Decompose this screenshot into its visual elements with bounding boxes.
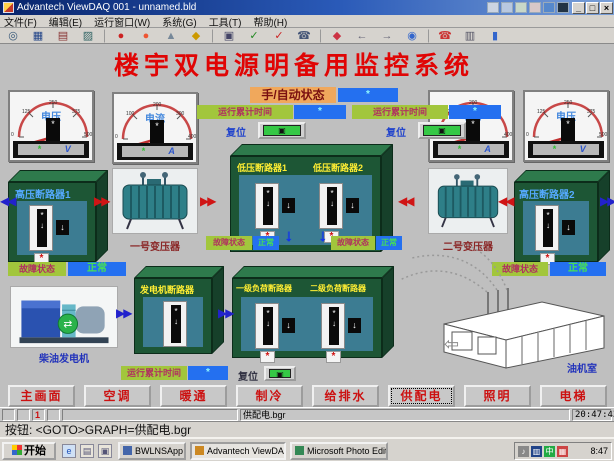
- titlebar-icon[interactable]: [501, 2, 513, 13]
- incoming-arrow-right: ▶▶: [600, 194, 614, 208]
- gauge-value: *: [458, 144, 462, 155]
- gauge-unit: V: [580, 144, 586, 155]
- gauge-tick: 300: [176, 111, 184, 117]
- fault-value-center-1: 正常: [253, 236, 279, 250]
- maximize-button[interactable]: □: [586, 2, 599, 14]
- volume-icon[interactable]: ♪: [518, 446, 529, 457]
- gauge-unit: A: [484, 144, 491, 155]
- app-icon: [3, 2, 14, 13]
- generator-breaker-box: 发电机断路器 * ↓: [134, 266, 224, 354]
- gauge-readout: * A: [433, 141, 509, 158]
- runtime-label-1: 运行累计时间: [197, 105, 293, 119]
- transformer-1-image: [112, 168, 198, 234]
- load-breaker-2[interactable]: * ↓↓*: [321, 303, 345, 349]
- input-method-icon[interactable]: 中: [544, 446, 555, 457]
- phone-icon[interactable]: ☎: [436, 29, 454, 43]
- page-title: 楼宇双电源明备用监控系统: [88, 46, 500, 82]
- network-icon[interactable]: ▥: [531, 446, 542, 457]
- flow-arrow-t1-lv: ▶▶: [200, 194, 214, 208]
- status-page-number: 1: [32, 409, 45, 421]
- menu-item-2[interactable]: 运行窗口(W): [94, 14, 150, 29]
- snapshot-icon[interactable]: ▣: [220, 29, 238, 43]
- gauge-display: *: [46, 118, 60, 142]
- titlebar-icon[interactable]: [515, 2, 527, 13]
- task-button-3[interactable]: Microsoft Photo Editor: [290, 442, 388, 460]
- trend-icon[interactable]: ▨: [79, 29, 105, 43]
- toolbar: ◎▦▤▨●●▲◆▣✓✓☎◆←→◉☎▥▮: [0, 28, 614, 44]
- load-breaker-1-title: 一级负荷断路器: [236, 283, 292, 294]
- titlebar-icon[interactable]: [557, 2, 569, 13]
- mode-label: 手/自动状态: [250, 87, 336, 103]
- status-cell: [17, 409, 30, 421]
- load-breaker-box: 一级负荷断路器 二级负荷断路器 * ↓↓* * ↓↓*: [232, 266, 394, 358]
- taskbar: 开始 e ▤ ▣ BWLNSApp Advantech ViewDAQ 001 …: [0, 437, 614, 461]
- film-icon[interactable]: ▥: [461, 29, 479, 43]
- person-icon[interactable]: ▮: [486, 29, 504, 43]
- channels-icon[interactable]: ▣: [98, 444, 112, 458]
- minimize-button[interactable]: _: [572, 2, 585, 14]
- dial-icon[interactable]: ☎: [295, 29, 321, 43]
- print-icon[interactable]: ▤: [54, 29, 72, 43]
- window-title: Advantech ViewDAQ 001 - unnamed.bld: [17, 0, 487, 15]
- hv-breaker-1[interactable]: * ↓↓*: [29, 205, 53, 251]
- breaker-rod: * ↓: [37, 209, 47, 247]
- alarm-ack-icon[interactable]: ●: [137, 29, 155, 43]
- lv-breaker-2-title: 低压断路器2: [313, 161, 363, 174]
- hv-breaker-2-title: 高压断路器2: [519, 186, 575, 201]
- nav-button-4[interactable]: 给排水: [312, 385, 379, 407]
- plant-room-drawing: ⇦: [392, 240, 610, 370]
- fault-label-center-2: 故障状态: [331, 236, 375, 250]
- key-icon[interactable]: ◆: [187, 29, 213, 43]
- close-button[interactable]: ×: [600, 2, 613, 14]
- gauge-readout: * V: [528, 141, 604, 158]
- status-cell: [47, 409, 60, 421]
- transformer-2-image: [428, 168, 508, 234]
- reset-label-1: 复位: [226, 124, 246, 139]
- incoming-arrow-left: ◀◀: [0, 194, 14, 208]
- lv-breaker-1-title: 低压断路器1: [237, 161, 287, 174]
- back-icon[interactable]: ←: [353, 29, 371, 43]
- voltage-gauge-1: 电压 * * V 0125250375500: [8, 90, 94, 162]
- nav-button-7[interactable]: 电梯: [540, 385, 607, 407]
- gauge-tick: 250: [564, 100, 572, 106]
- status-cell: [62, 409, 238, 421]
- fault-label-left: 故障状态: [8, 262, 66, 276]
- runtime-value-1: *: [294, 105, 346, 119]
- breaker-alarm-indicator: *: [326, 351, 341, 363]
- gauge-display: *: [150, 120, 164, 144]
- menu-item-4[interactable]: 工具(T): [209, 14, 242, 29]
- tray-clock: 8:47: [590, 446, 608, 456]
- gauge-tick: 375: [72, 109, 80, 115]
- nav-button-1[interactable]: 空调: [84, 385, 151, 407]
- gen-runtime-value: *: [188, 366, 228, 380]
- nav-bar: 主画面空调暖通制冷给排水供配电照明电梯: [8, 385, 614, 407]
- hmi-canvas: 楼宇双电源明备用监控系统 电压 * * V 0125250375500: [0, 44, 614, 407]
- nav-button-2[interactable]: 暖通: [160, 385, 227, 407]
- gauge-tick: 0: [526, 132, 529, 138]
- gauge-value: *: [38, 144, 42, 155]
- breaker-trip-indicator: ↓: [282, 318, 295, 333]
- fault-label-center-1: 故障状态: [206, 236, 252, 250]
- load-breaker-2-title: 二级负荷断路器: [310, 283, 366, 294]
- mode-value: *: [338, 88, 398, 102]
- gauge-tick: 0: [11, 132, 14, 138]
- generator-breaker-title: 发电机断路器: [140, 283, 194, 296]
- gauge-tick: 500: [84, 132, 92, 138]
- gauge-tick: 0: [115, 134, 118, 140]
- breaker-trip-indicator: ↓: [282, 198, 295, 213]
- reset-button-1[interactable]: ▣: [258, 122, 306, 139]
- menu-item-5[interactable]: 帮助(H): [253, 14, 287, 29]
- svg-text:⇄: ⇄: [63, 319, 72, 331]
- monitor-icon[interactable]: ▦: [557, 446, 568, 457]
- gauge-display: *: [466, 118, 480, 142]
- reset-label-2: 复位: [386, 124, 406, 139]
- ie-icon[interactable]: e: [62, 444, 76, 458]
- runtime-value-2: *: [449, 105, 501, 119]
- gauge-display: *: [561, 118, 575, 142]
- reset-button-2[interactable]: ▣: [418, 122, 466, 139]
- nav-button-6[interactable]: 照明: [464, 385, 531, 407]
- gauge-value: *: [553, 144, 557, 155]
- current-gauge-1: 电流 * * A 0100200300400: [112, 92, 198, 164]
- breaker-trip-indicator: ↓: [346, 198, 359, 213]
- tag-icon[interactable]: ▲: [162, 29, 180, 43]
- lv-breaker-2[interactable]: * ↓↓*: [319, 183, 343, 229]
- title-bar: Advantech ViewDAQ 001 - unnamed.bld _ □ …: [0, 0, 614, 15]
- desktop-icon[interactable]: ▤: [80, 444, 94, 458]
- breaker-rod: * ↓: [263, 187, 273, 225]
- flow-arrow-lv-t2: ◀◀: [398, 194, 412, 208]
- titlebar-icon[interactable]: [487, 2, 499, 13]
- status-cell: [2, 409, 15, 421]
- menu-item-1[interactable]: 编辑(E): [49, 14, 82, 29]
- nav-button-5[interactable]: 供配电: [388, 385, 455, 407]
- lv-breaker-1[interactable]: * ↓↓*: [255, 183, 279, 229]
- cancel-icon[interactable]: ✓: [270, 29, 288, 43]
- gauge-readout: * A: [117, 143, 193, 160]
- load-arrow-down-1: ↓: [284, 226, 293, 246]
- plant-room-caption: 油机室: [556, 360, 608, 375]
- scada-window: Advantech ViewDAQ 001 - unnamed.bld _ □ …: [0, 0, 614, 461]
- windows-logo-icon: [12, 445, 22, 455]
- flow-arrow-t2-hv2: ◀◀: [498, 194, 512, 208]
- gauge-unit: V: [65, 144, 71, 155]
- world-icon[interactable]: ◉: [403, 29, 429, 43]
- confirm-icon[interactable]: ✓: [245, 29, 263, 43]
- status-filename: 供配电.bgr: [240, 409, 570, 421]
- transformer-1-caption: 一号变压器: [114, 238, 196, 253]
- flow-arrow-hv1-t1: ▶▶: [94, 194, 108, 208]
- quick-launch: e ▤ ▣: [62, 444, 112, 458]
- gauge-tick: 250: [49, 100, 57, 106]
- breaker-alarm-indicator: *: [260, 351, 275, 363]
- nav-button-3[interactable]: 制冷: [236, 385, 303, 407]
- status-clock: 20:47:43: [572, 409, 612, 421]
- breaker-trip-indicator: ↓: [562, 220, 575, 235]
- point-icon[interactable]: ◆: [328, 29, 346, 43]
- breaker-rod: * ↓: [263, 307, 273, 345]
- gauge-tick: 500: [599, 132, 607, 138]
- breaker-rod: * ↓: [327, 187, 337, 225]
- gauge-tick: 200: [153, 102, 161, 108]
- forward-icon[interactable]: →: [378, 29, 396, 43]
- task-button-1[interactable]: BWLNSApp: [118, 442, 186, 460]
- gen-reset-button[interactable]: ▣: [264, 366, 296, 381]
- start-button[interactable]: 开始: [2, 442, 56, 460]
- titlebar-icon[interactable]: [529, 2, 541, 13]
- menu-item-3[interactable]: 系统(G): [162, 14, 196, 29]
- load-breaker-1[interactable]: * ↓↓*: [255, 303, 279, 349]
- titlebar-tool-icons[interactable]: [487, 2, 569, 13]
- generator-breaker[interactable]: * ↓: [163, 301, 187, 347]
- alarm-icon[interactable]: ●: [112, 29, 130, 43]
- zoom-icon[interactable]: ◎: [4, 29, 22, 43]
- voltage-gauge-2: 电压 * * V 0125250375500: [523, 90, 609, 162]
- load-arrow-down-2: ↓: [318, 226, 327, 246]
- svg-text:⇦: ⇦: [444, 334, 459, 354]
- nav-button-0[interactable]: 主画面: [8, 385, 75, 407]
- runtime-label-2: 运行累计时间: [352, 105, 448, 119]
- gauge-tick: 100: [126, 111, 134, 117]
- gauge-tick: 375: [587, 109, 595, 115]
- breaker-rod: * ↓: [329, 307, 339, 345]
- generator-caption: 柴油发电机: [22, 350, 106, 365]
- task-button-2[interactable]: Advantech ViewDAQ 001: [190, 442, 286, 460]
- flow-arrow-breaker-load: ▶▶: [218, 306, 232, 320]
- display-icon[interactable]: ▦: [29, 29, 47, 43]
- breaker-trip-indicator: ↓: [56, 220, 69, 235]
- hv-breaker-1-title: 高压断路器1: [15, 186, 71, 201]
- generator-image: ⇄: [10, 286, 118, 348]
- breaker-rod: * ↓: [171, 305, 181, 343]
- flow-arrow-gen-breaker: ▶▶: [116, 306, 130, 320]
- breaker-trip-indicator: ↓: [348, 318, 361, 333]
- command-bar: 按钮: <GOTO>GRAPH=供配电.bgr: [0, 421, 614, 437]
- gauge-tick: 400: [188, 134, 196, 140]
- system-tray: ♪ ▥ 中 ▦ 8:47: [514, 442, 612, 460]
- gauge-tick: 125: [22, 109, 30, 115]
- fault-value-left: 正常: [68, 262, 126, 276]
- hv-breaker-box-1: 高压断路器1 * ↓↓*: [8, 170, 108, 262]
- gauge-readout: * V: [13, 141, 89, 158]
- gen-runtime-label: 运行累计时间: [121, 366, 187, 380]
- gauge-tick: 400: [504, 132, 512, 138]
- status-bar: 1 供配电.bgr 20:47:43: [0, 407, 614, 421]
- menu-item-0[interactable]: 文件(F): [4, 14, 37, 29]
- gauge-tick: 125: [537, 109, 545, 115]
- gauge-unit: A: [168, 146, 175, 157]
- menu-bar: 文件(F)编辑(E)运行窗口(W)系统(G)工具(T)帮助(H): [0, 15, 614, 28]
- gauge-value: *: [142, 146, 146, 157]
- titlebar-icon[interactable]: [543, 2, 555, 13]
- gen-reset-label: 复位: [238, 368, 258, 383]
